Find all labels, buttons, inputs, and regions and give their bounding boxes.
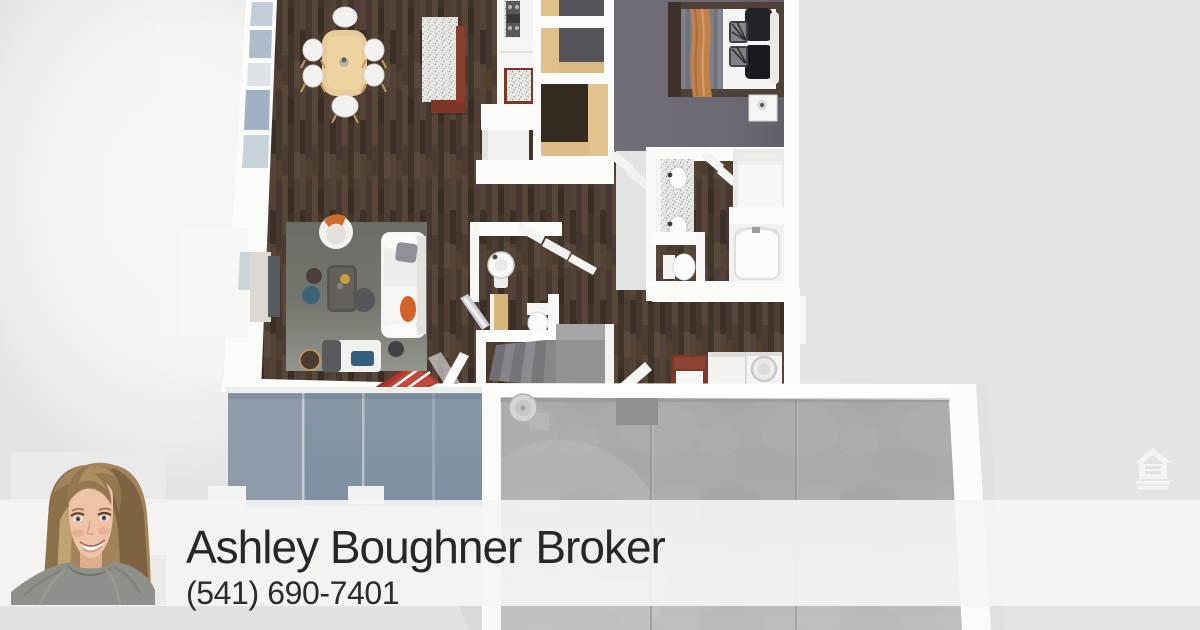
svg-text:(541) 690-7401: (541) 690-7401 (186, 575, 399, 611)
svg-text:Ashley BoughnerBroker: Ashley BoughnerBroker (186, 521, 666, 573)
